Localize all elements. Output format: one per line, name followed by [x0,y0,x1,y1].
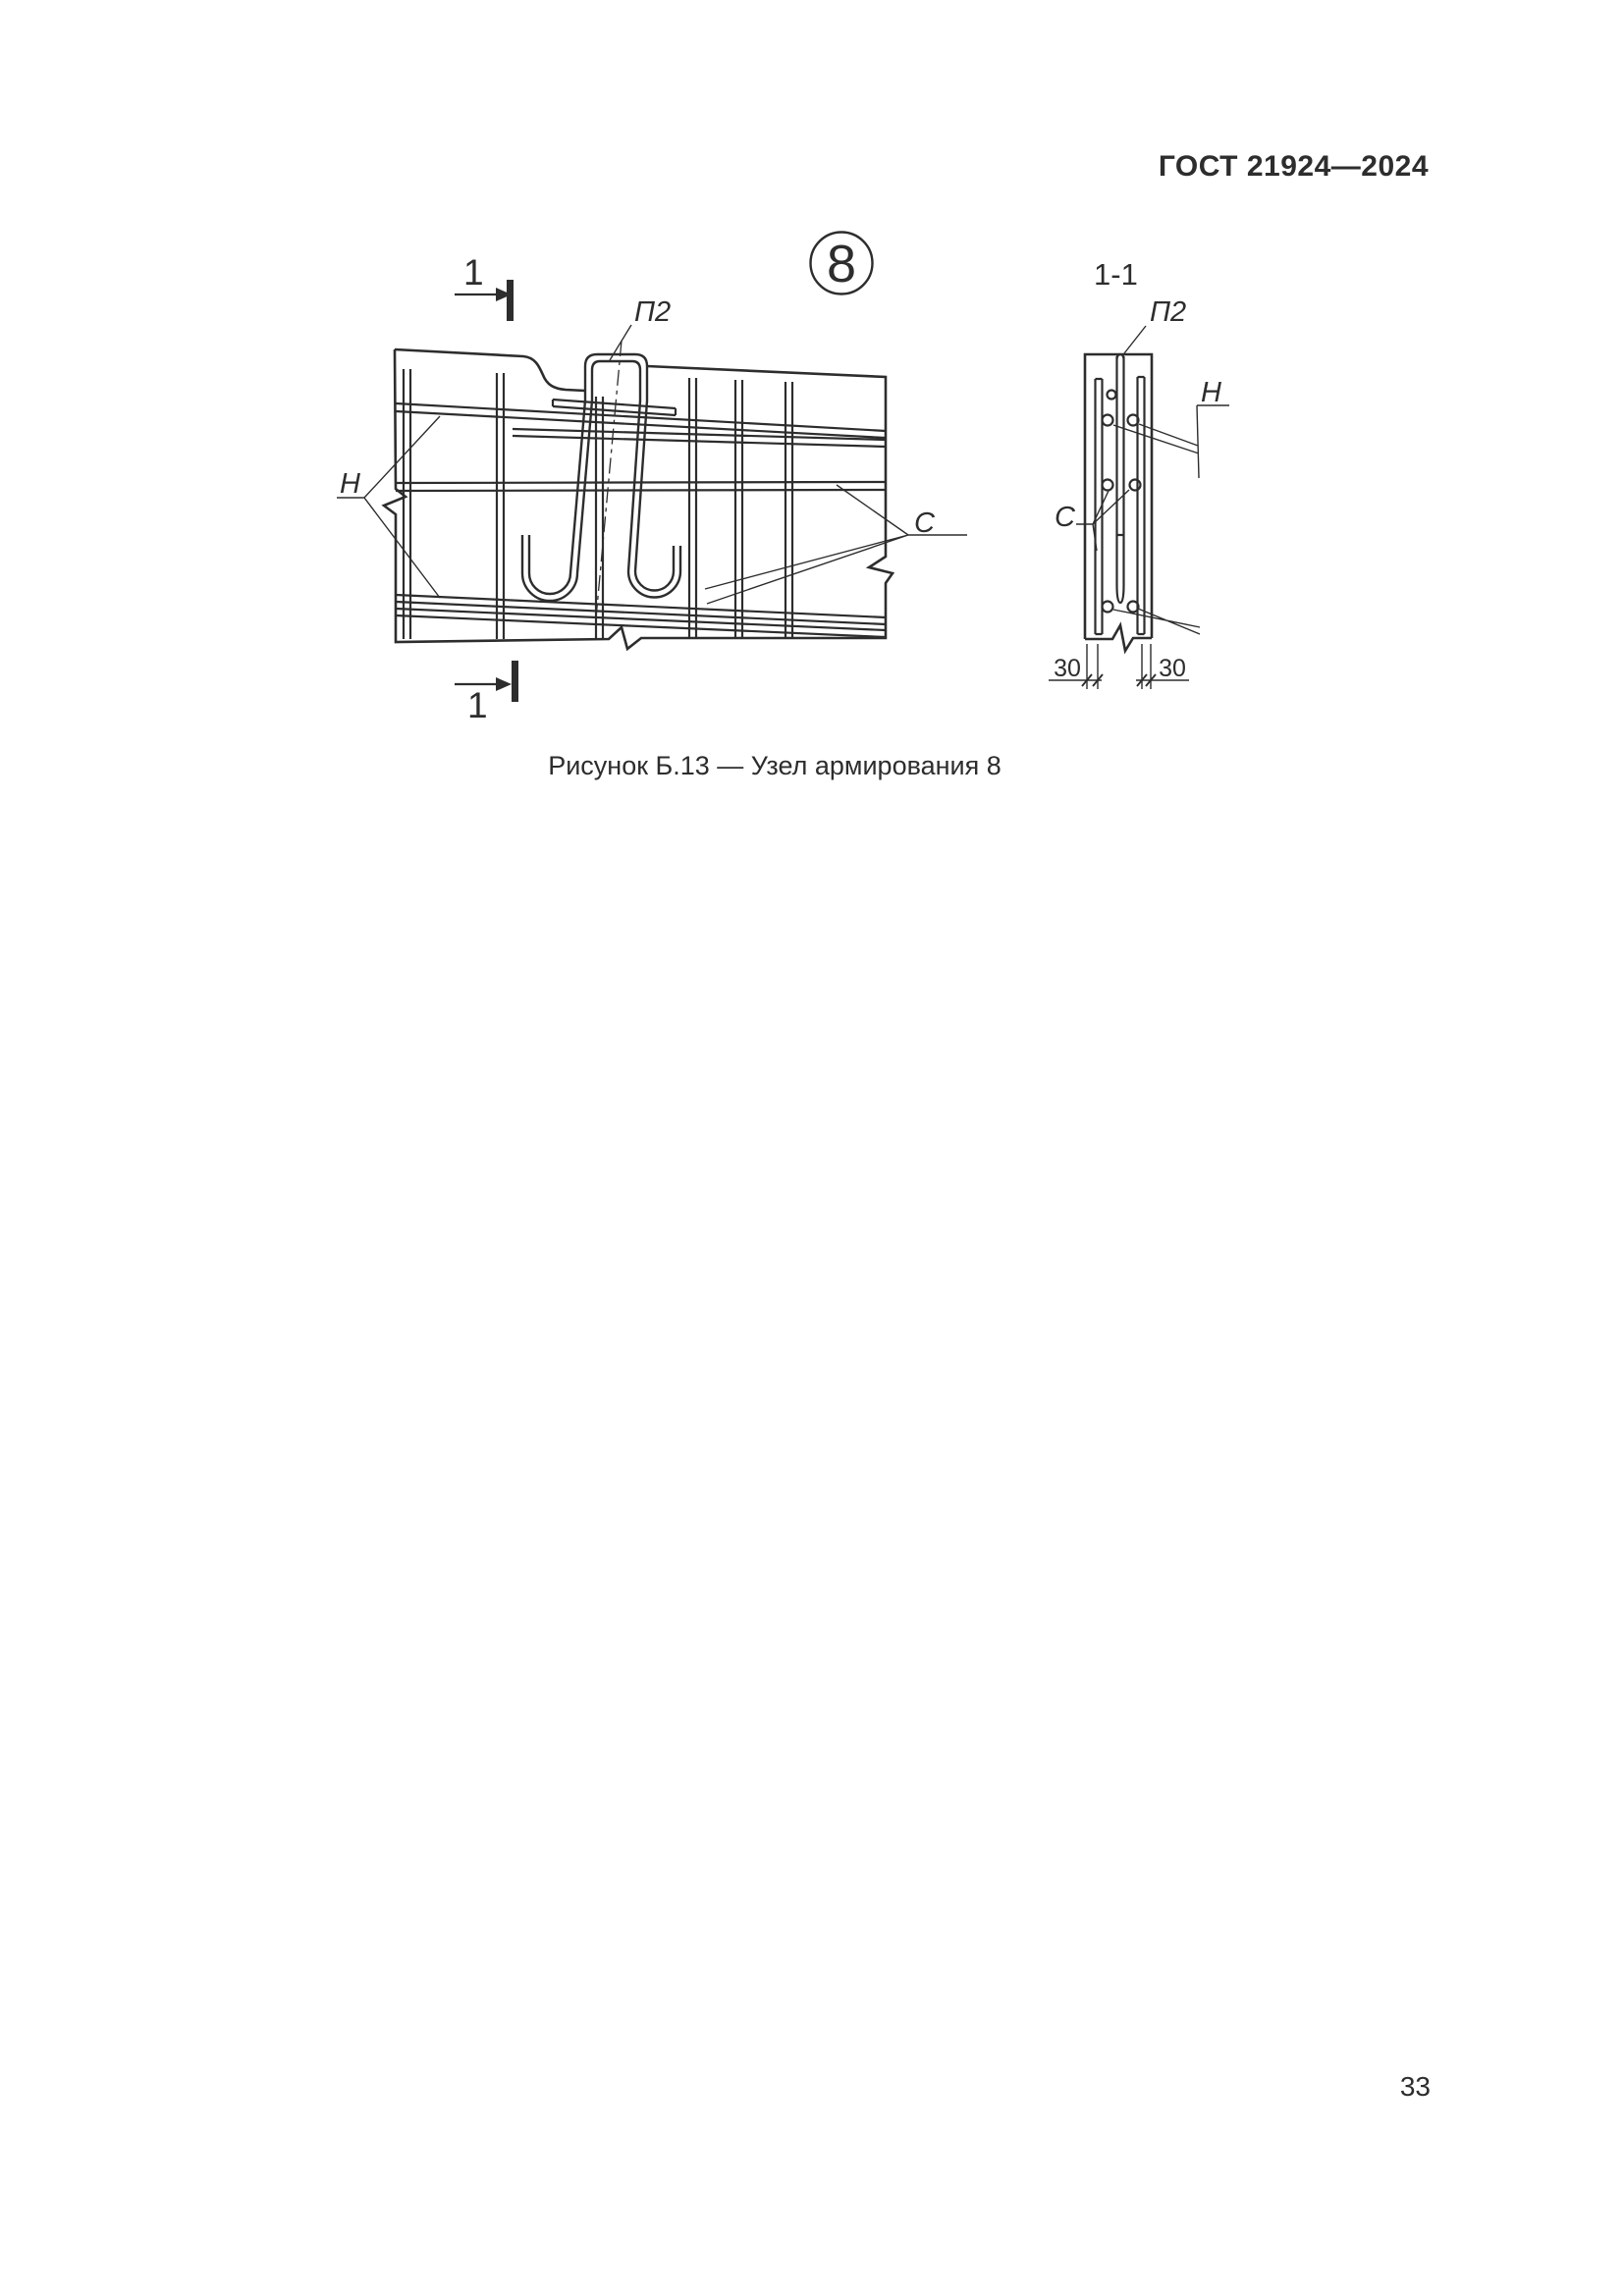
cut-label-top: 1 [463,252,484,293]
figure-caption: Рисунок Б.13 — Узел армирования 8 [396,751,1154,781]
cut-plane-bottom [512,661,518,702]
figure-b13-drawing: П2 Н С 1 1 8 1-1 [0,0,1624,2296]
section-bars-leaders [1113,405,1229,634]
bar-section-dot [1108,391,1116,400]
section-title: 1-1 [1094,257,1138,292]
main-view: П2 Н С [337,296,967,649]
detail-badge: 8 [811,233,873,294]
horizontal-bars [396,400,886,637]
document-page: ГОСТ 21924—2024 П2 Н С [0,0,1624,2296]
label-mesh-section: С [1055,502,1076,533]
cut-plane-top [507,280,514,321]
label-bars-main: Н [340,468,360,500]
section-bar-circles [1103,391,1141,613]
section-cut-marks: 1 1 [455,252,518,725]
bar-section-dot [1103,415,1113,426]
section-view: 1-1 П2 Н [1049,257,1229,689]
bar-section-dot [1103,602,1113,613]
page-number: 33 [1400,2071,1431,2103]
hairpin-p2-shape [522,354,680,601]
dim-value-left: 30 [1054,655,1081,682]
centerline [596,341,622,618]
section-hairpin-leader [1124,326,1146,353]
mesh-label-leaders [705,485,967,604]
cut-label-bottom: 1 [467,685,488,725]
bar-section-dot [1103,480,1113,491]
label-bars-section: Н [1201,377,1221,408]
bars-label-leaders [337,416,440,598]
label-hairpin-section: П2 [1150,296,1186,328]
cut-arrowhead-bottom-icon [496,677,512,691]
section-hairpin-p2 [1117,354,1124,603]
dim-value-right: 30 [1159,655,1186,682]
label-hairpin-main: П2 [634,296,671,328]
section-dimensions: 30 30 [1049,644,1189,689]
label-mesh-main: С [914,507,936,539]
bar-section-dot [1130,480,1141,491]
detail-number: 8 [827,235,856,294]
